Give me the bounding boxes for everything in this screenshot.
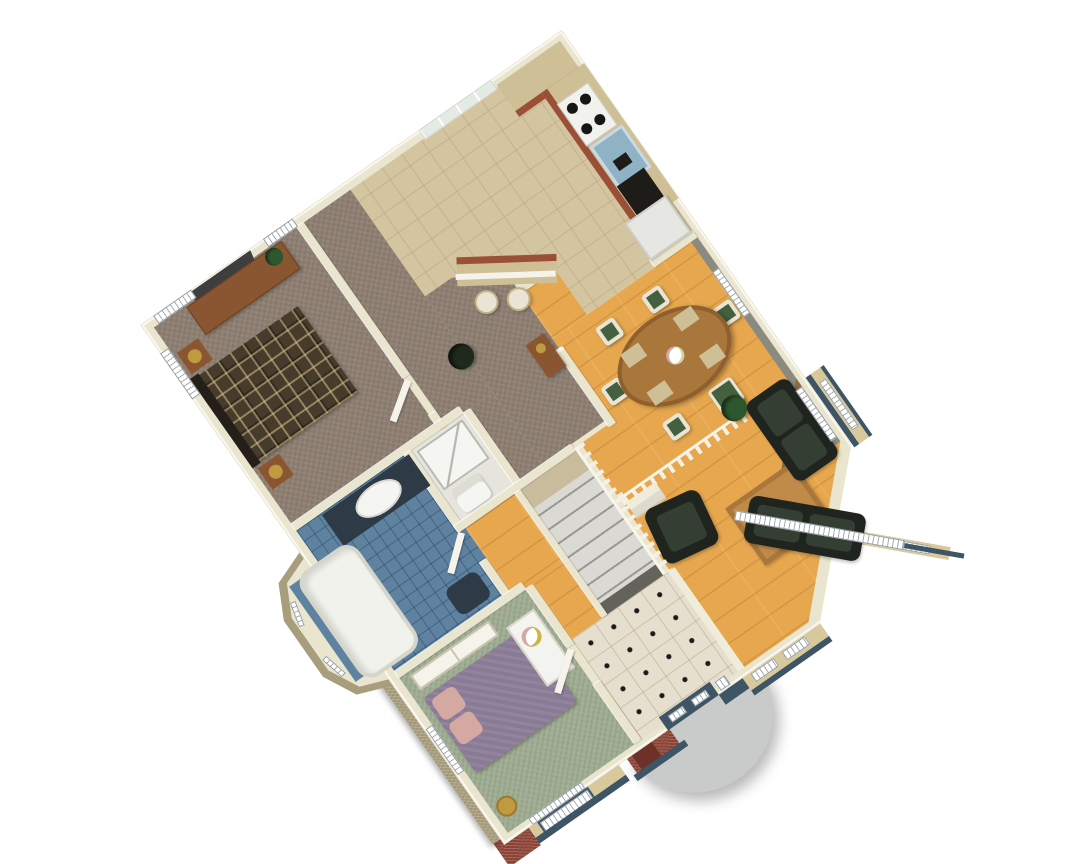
placemat-3	[646, 380, 673, 406]
burner-1	[565, 101, 580, 116]
placemat-1	[620, 342, 647, 368]
floor-plan-scene	[0, 0, 1080, 864]
chair-seat	[646, 290, 665, 309]
burner-4	[592, 112, 607, 127]
placemat-4	[699, 343, 726, 369]
burner-2	[578, 91, 593, 106]
house-plan	[140, 30, 926, 846]
chair-seat	[667, 417, 686, 436]
chair-seat	[600, 322, 619, 341]
gold-pot	[534, 341, 548, 355]
burner-3	[579, 121, 594, 136]
placemat-2	[672, 306, 699, 332]
sink-basin	[613, 152, 633, 171]
armchair-cushion	[655, 500, 708, 553]
